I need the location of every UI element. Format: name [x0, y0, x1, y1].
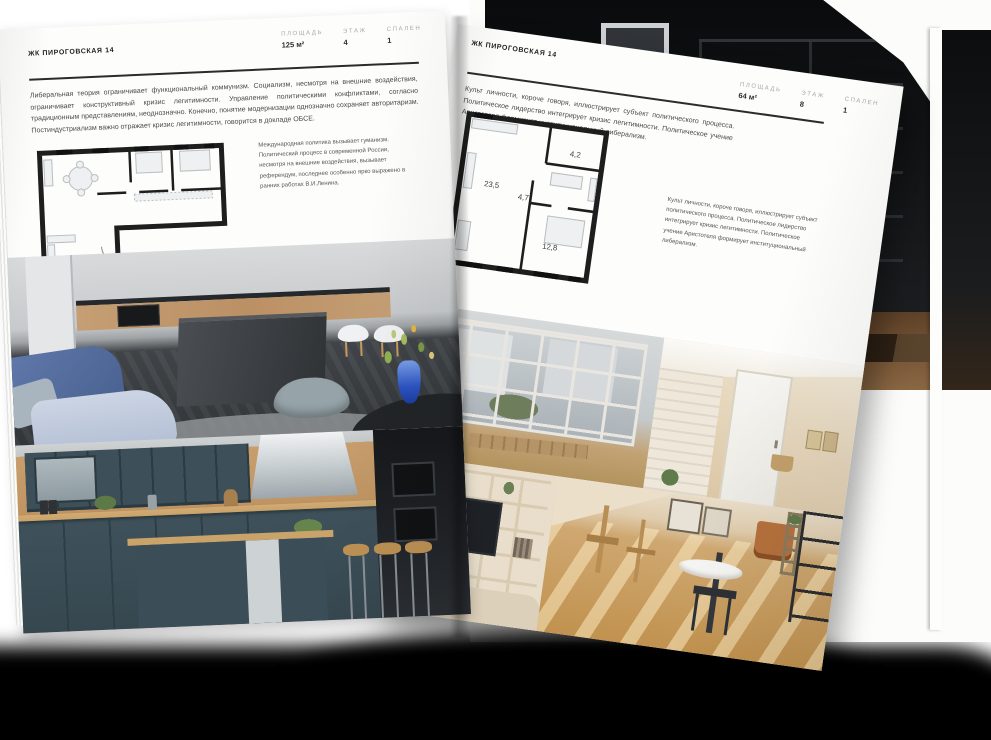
leaning-frame	[701, 506, 732, 537]
page-title: ЖК ПИРОГОВСКАЯ 14	[471, 40, 557, 59]
plant	[500, 478, 519, 499]
built-in-oven	[393, 506, 438, 542]
stat-value: 1	[843, 105, 879, 119]
stat-value: 8	[799, 99, 824, 111]
photo-dark-loft-right	[942, 30, 991, 390]
photo-teal-kitchen	[15, 426, 471, 633]
room-area-hall: 4,7	[517, 192, 529, 202]
basket	[770, 454, 794, 472]
chair-legs	[338, 342, 370, 358]
stat-bedrooms: СПАЛЕН 1	[387, 26, 422, 45]
room-area-bath: 4,2	[569, 149, 581, 159]
stat-area: ПЛОЩАДЬ 125 м²	[281, 30, 324, 50]
white-chair	[337, 324, 370, 358]
plan-note: Международная политика вызывает гуманизм…	[258, 134, 418, 192]
plant	[784, 511, 806, 528]
magazine-mockup-scene: ЖК ПИРОГОВСКАЯ 14 ПЛОЩАДЬ 64 м² ЭТАЖ 8 С…	[0, 0, 991, 740]
stat-value: 125 м²	[281, 39, 323, 50]
stat-label: СПАЛЕН	[387, 26, 422, 34]
stat-value: 4	[343, 37, 367, 47]
stool-legs	[374, 554, 404, 618]
photo-kitchen-island-living	[7, 238, 463, 447]
range-hood	[248, 431, 358, 500]
stat-area: ПЛОЩАДЬ 64 м²	[738, 82, 782, 106]
picture-frame	[806, 430, 823, 451]
island-pillar	[245, 540, 282, 624]
bar-stool	[374, 542, 404, 618]
chair-seat	[337, 324, 369, 343]
built-in-oven	[391, 461, 436, 497]
white-door	[25, 255, 76, 361]
stand-leg	[724, 598, 732, 635]
plan-note: Культ личности, короче говоря, иллюстрир…	[661, 195, 819, 267]
built-in-oven	[117, 304, 160, 327]
stand-leg	[691, 594, 699, 631]
island-body	[136, 538, 328, 629]
flowers	[373, 315, 443, 375]
leaning-frame	[667, 499, 704, 535]
page-edge	[930, 28, 942, 630]
stat-label: ЭТАЖ	[343, 28, 367, 35]
stat-floor: ЭТАЖ 4	[343, 28, 367, 47]
page-title: ЖК ПИРОГОВСКАЯ 14	[28, 47, 114, 58]
intro-paragraph: Либеральная теория ограничивает функцион…	[30, 74, 420, 137]
door-handle	[774, 440, 778, 448]
picture-frame	[822, 431, 839, 453]
stool-legs	[406, 552, 436, 616]
stat-label: ЭТАЖ	[801, 90, 825, 99]
bar-stool	[342, 543, 372, 619]
stat-floor: ЭТАЖ 8	[799, 90, 825, 111]
books	[512, 536, 532, 559]
blue-sofa	[7, 346, 177, 448]
page-left: ЖК ПИРОГОВСКАЯ 14 ПЛОЩАДЬ 125 м² ЭТАЖ 4 …	[0, 11, 471, 634]
spine-shadow	[450, 16, 468, 638]
upper-cabinets	[24, 443, 250, 512]
plant	[655, 463, 685, 492]
stats-row: ПЛОЩАДЬ 125 м² ЭТАЖ 4 СПАЛЕН 1	[281, 26, 422, 50]
stat-bedrooms: СПАЛЕН 1	[843, 97, 880, 120]
stat-label: ПЛОЩАДЬ	[281, 30, 323, 38]
bar-stool	[405, 540, 435, 616]
photo-cream-hallway	[643, 338, 865, 517]
stat-value: 64 м²	[738, 91, 781, 106]
white-door	[718, 369, 793, 510]
stat-value: 1	[387, 35, 422, 46]
stool-legs	[343, 555, 373, 619]
